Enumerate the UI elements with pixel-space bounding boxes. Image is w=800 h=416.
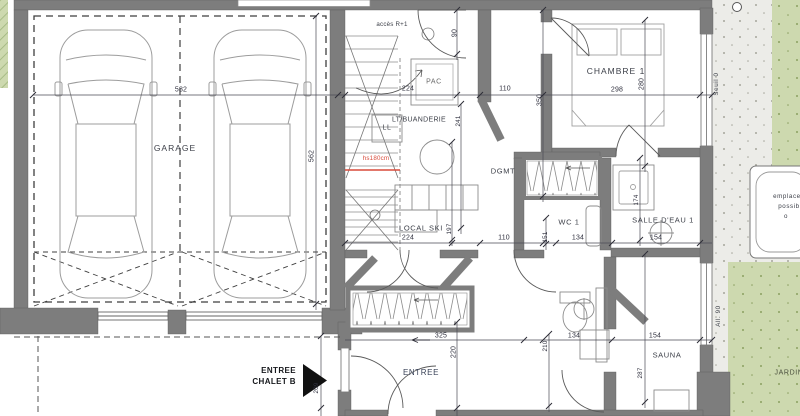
dim-garage-depth: 562 <box>309 150 316 162</box>
dim-top-offset: 90 <box>452 29 459 37</box>
entry-wardrobe <box>348 288 472 330</box>
spa-note-line3: o <box>784 214 788 220</box>
garage-parking-outline <box>34 16 326 306</box>
dim-wc-offset: 151 <box>543 232 549 243</box>
label-washer: LL <box>383 125 392 132</box>
toilet-wc1 <box>586 206 601 246</box>
dim-bedroom-depth: 350 <box>537 94 544 106</box>
label-headroom: hs180cm <box>363 156 390 162</box>
label-pac: PAC <box>426 79 442 86</box>
chalet-entry-line1: ENTREE <box>228 366 296 377</box>
label-garden: JARDIN <box>775 370 800 377</box>
dim-hall-width-mid: 110 <box>498 235 510 242</box>
chalet-entry-label: ENTREE CHALET B <box>228 366 296 388</box>
dim-ski-width: 224 <box>402 235 414 242</box>
dim-bathroom-depth: 174 <box>634 195 640 206</box>
washing-machine <box>420 140 454 174</box>
floor-plan: GARAGE CHAMBRE 1 DGMT WC 1 SALLE D'EAU 1… <box>0 0 800 416</box>
staircase <box>345 28 434 250</box>
dim-bed-width: 280 <box>639 78 646 90</box>
dim-wc-width: 134 <box>572 235 584 242</box>
dim-entry-right-depth: 210 <box>543 341 549 352</box>
room-label-hallway: DGMT <box>491 167 515 175</box>
label-stair-access: accès R+1 <box>376 22 407 28</box>
label-threshold: Seuil 0 <box>714 72 720 95</box>
room-label-entrance: ENTREE <box>403 369 439 377</box>
lower-bath-fixtures <box>560 288 609 362</box>
dim-lower-wc-width: 134 <box>568 333 580 340</box>
room-label-bathroom1: SALLE D'EAU 1 <box>632 216 694 224</box>
room-label-sauna: SAUNA <box>653 351 682 359</box>
room-label-wc1: WC 1 <box>558 218 579 226</box>
room-label-ski-room: LOCAL SKI <box>399 224 443 232</box>
dim-bedroom-width: 298 <box>611 87 623 94</box>
dim-bathroom-width: 154 <box>650 235 662 242</box>
dim-hall-width-top: 110 <box>499 86 511 93</box>
dim-entry-width: 325 <box>435 333 447 340</box>
room-label-bedroom1: CHAMBRE 1 <box>587 67 646 76</box>
sauna-stove <box>654 390 689 411</box>
garage-doors <box>98 312 322 320</box>
dim-garage-width: 582 <box>175 87 187 94</box>
dim-stair-bay-width: 224 <box>402 86 414 93</box>
room-label-laundry: LT/BUANDERIE <box>392 117 446 124</box>
spa-note-line1: emplacement <box>773 194 800 200</box>
dim-sauna-width: 154 <box>649 333 661 340</box>
room-label-garage: GARAGE <box>154 144 196 153</box>
dim-entry-depth: 220 <box>451 346 458 358</box>
car-right <box>209 30 311 298</box>
hall-closet <box>524 158 600 198</box>
dim-laundry-depth: 241 <box>456 116 462 127</box>
dim-chalet-entry-width: 209 <box>314 383 320 394</box>
spa-placement-box <box>750 166 800 258</box>
dim-ski-depth: 197 <box>447 224 453 235</box>
spa-note-line2: possible <box>778 204 800 210</box>
chalet-entry-line2: CHALET B <box>228 377 296 388</box>
label-sill: All. 90 <box>716 305 722 326</box>
car-left <box>55 30 157 298</box>
column-marker <box>733 3 742 12</box>
dim-sauna-depth: 287 <box>638 368 644 379</box>
